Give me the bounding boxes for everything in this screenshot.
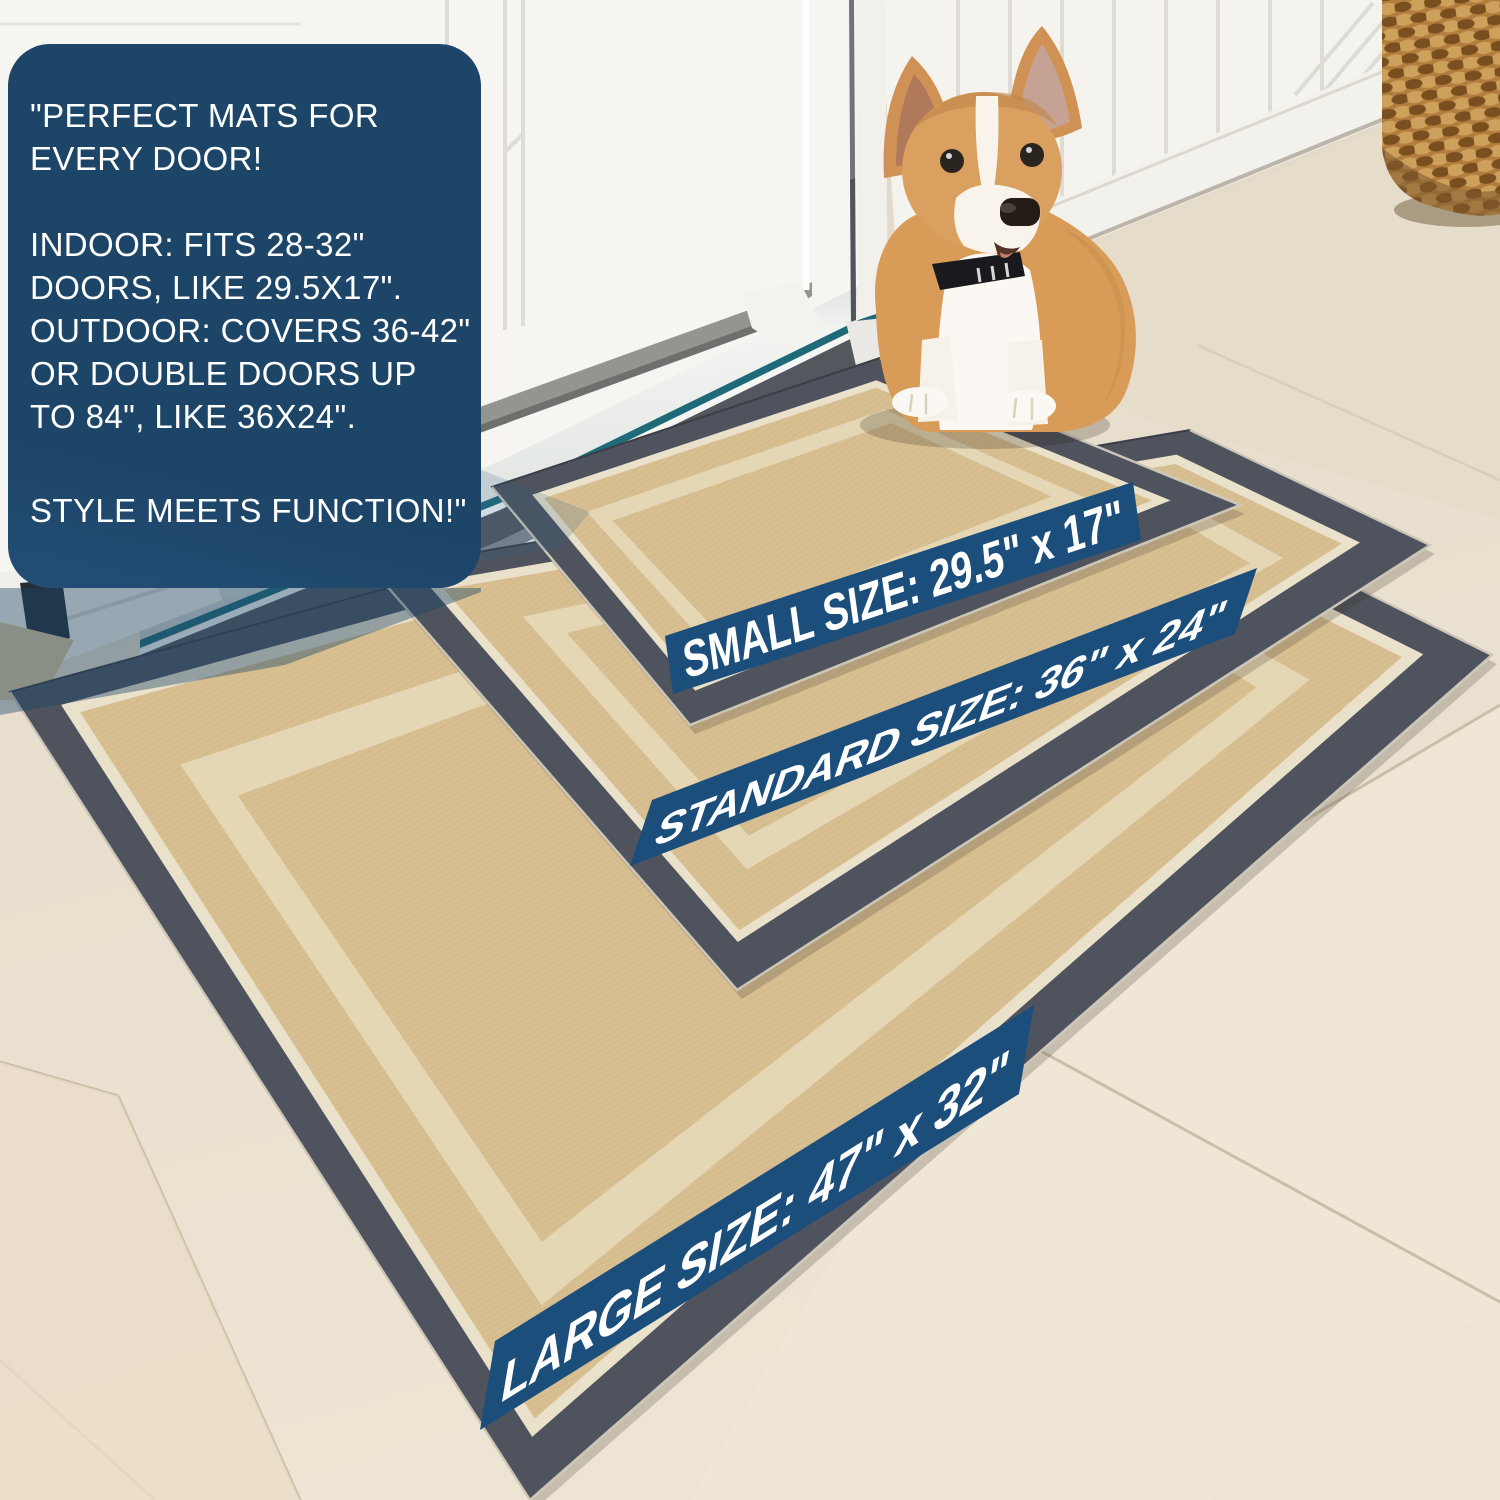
svg-text:OR DOUBLE DOORS UP: OR DOUBLE DOORS UP xyxy=(30,355,417,392)
svg-text:DOORS, LIKE 29.5X17".: DOORS, LIKE 29.5X17". xyxy=(30,269,402,306)
svg-text:"PERFECT MATS FOR: "PERFECT MATS FOR xyxy=(30,97,379,134)
svg-text:OUTDOOR: COVERS 36-42": OUTDOOR: COVERS 36-42" xyxy=(30,312,470,349)
svg-text:INDOOR: FITS 28-32": INDOOR: FITS 28-32" xyxy=(30,226,365,263)
svg-text:STYLE MEETS FUNCTION!": STYLE MEETS FUNCTION!" xyxy=(30,492,467,529)
svg-text:TO 84", LIKE 36X24".: TO 84", LIKE 36X24". xyxy=(30,398,356,435)
svg-text:EVERY DOOR!: EVERY DOOR! xyxy=(30,140,262,177)
